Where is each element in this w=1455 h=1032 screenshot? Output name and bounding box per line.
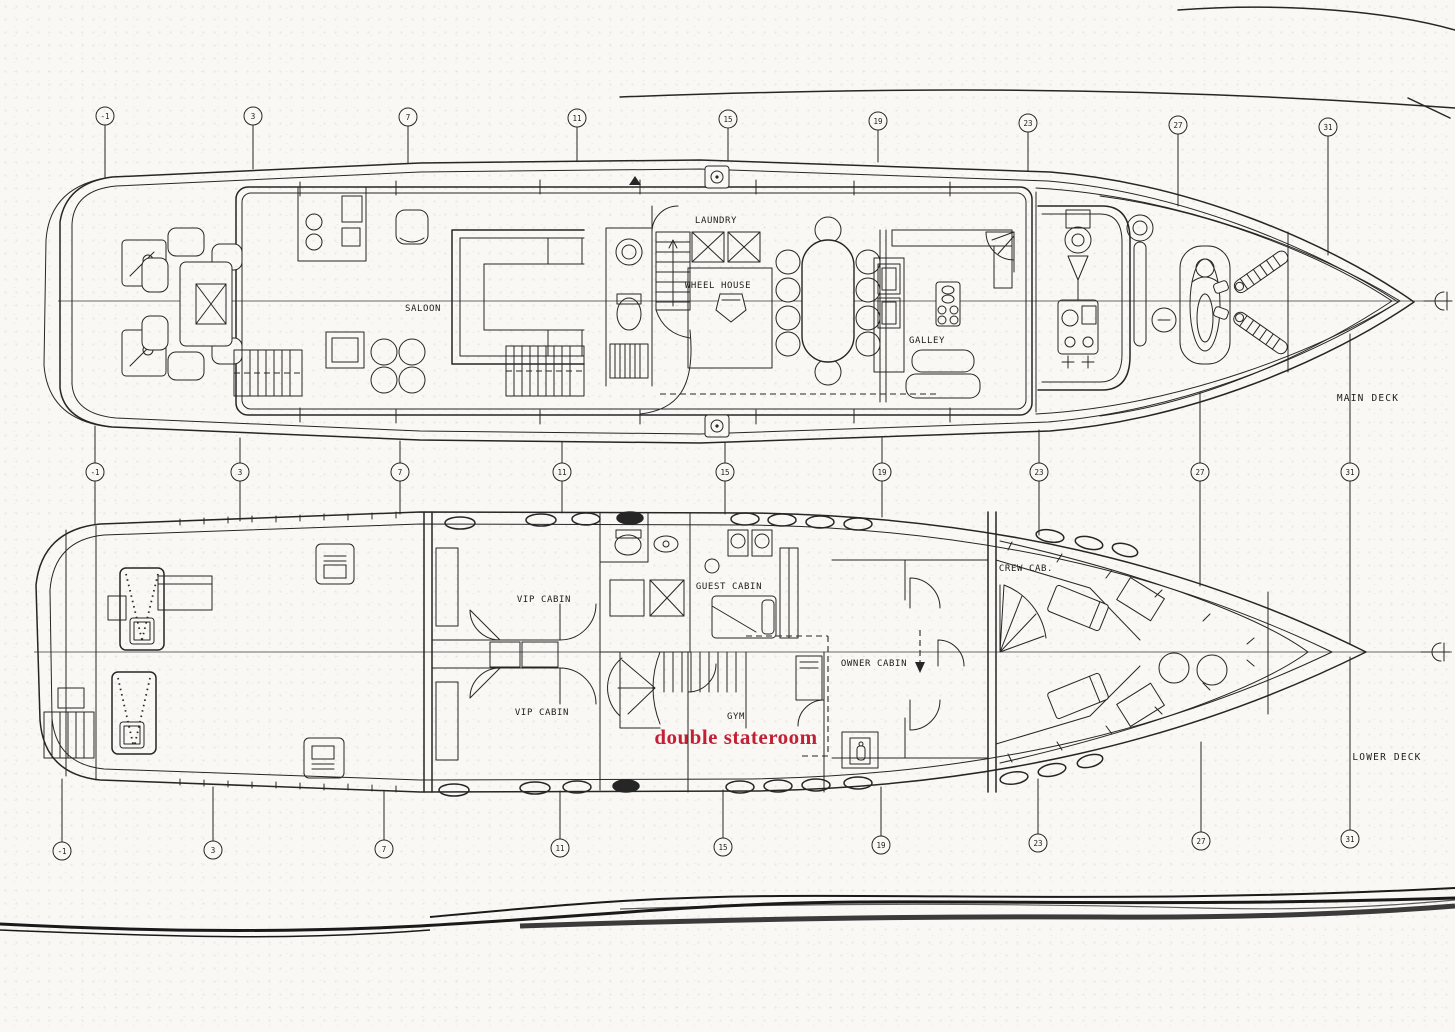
svg-text:7: 7	[382, 845, 387, 854]
svg-text:3: 3	[211, 846, 216, 855]
guest-bed	[712, 596, 776, 638]
guest-cabin-label: GUEST CABIN	[696, 582, 762, 592]
svg-text:11: 11	[572, 114, 581, 123]
main-deck-plan: SALOON LAUNDRY	[44, 160, 1452, 443]
mast-pole	[1127, 215, 1153, 346]
station-marker: 19	[873, 438, 891, 517]
door-arc	[652, 206, 678, 232]
wardrobe	[436, 548, 458, 626]
svg-text:-1: -1	[100, 112, 109, 121]
day-head	[606, 206, 678, 386]
dining-table	[802, 240, 854, 362]
svg-text:27: 27	[1173, 121, 1182, 130]
station-marker: 3	[231, 438, 249, 521]
double-stateroom-annotation: double stateroom	[654, 725, 817, 749]
station-marker: 15	[716, 442, 734, 514]
vip-cabin-label: VIP CABIN	[515, 708, 569, 718]
lower-deck-plan: VIP CABIN VIP CABIN	[34, 512, 1452, 796]
aft-deck	[122, 228, 302, 396]
door-arc	[938, 640, 964, 666]
svg-text:23: 23	[1023, 119, 1032, 128]
station-marker: 23	[1030, 430, 1048, 535]
station-marker: 7	[375, 791, 393, 858]
cooktop	[936, 282, 960, 326]
saloon-round-tables	[371, 339, 425, 393]
equipment-box	[304, 738, 344, 778]
svg-text:15: 15	[723, 115, 732, 124]
lower-deck-title: LOWER DECK	[1352, 752, 1421, 763]
bow-tank	[1197, 655, 1227, 685]
station-marker: 23	[1029, 779, 1047, 852]
svg-text:-1: -1	[90, 468, 99, 477]
stairs-up	[640, 232, 691, 414]
saloon-label: SALOON	[405, 304, 441, 314]
svg-text:31: 31	[1345, 468, 1354, 477]
laundry-label: LAUNDRY	[695, 216, 737, 226]
station-marker: 23	[1019, 114, 1037, 171]
door-arc	[688, 664, 716, 692]
settee	[912, 350, 974, 372]
svg-text:19: 19	[877, 468, 886, 477]
svg-text:15: 15	[718, 843, 727, 852]
door-arc	[560, 668, 596, 704]
gym-equipment	[796, 656, 822, 700]
owner-cabin-label: OWNER CABIN	[841, 659, 907, 669]
bar-cabinet	[298, 187, 366, 261]
svg-text:19: 19	[873, 117, 882, 126]
main-deck-title: MAIN DECK	[1337, 393, 1399, 404]
svg-text:23: 23	[1033, 839, 1042, 848]
wheel-house-label: WHEEL HOUSE	[685, 281, 751, 291]
svg-text:27: 27	[1196, 837, 1205, 846]
station-marker: 11	[551, 791, 569, 857]
crew-bunk	[1047, 673, 1109, 720]
svg-text:27: 27	[1195, 468, 1204, 477]
bow-tank	[1159, 653, 1189, 683]
scan-edge-band	[0, 888, 1455, 937]
station-marker: 7	[391, 441, 409, 514]
dining-area	[776, 217, 880, 385]
station-marker: 3	[204, 787, 222, 859]
helm-seat	[716, 294, 746, 322]
station-marker: 31	[1319, 118, 1337, 255]
station-marker: 31	[1341, 334, 1359, 644]
door-arc	[470, 668, 500, 698]
station-marker: 27	[1191, 392, 1209, 586]
sink	[654, 536, 678, 552]
centerline-symbol	[1421, 643, 1450, 661]
svg-text:11: 11	[557, 468, 566, 477]
wardrobe	[436, 682, 458, 760]
svg-text:31: 31	[1345, 835, 1354, 844]
svg-text:31: 31	[1323, 123, 1332, 132]
crew-bunk	[1047, 585, 1109, 632]
station-marker: -1	[86, 426, 104, 524]
aft-deck-stairs	[234, 350, 302, 396]
station-marker: 19	[869, 112, 887, 162]
station-markers-bottom: -1 3 7 11 15 19 23 27 31	[53, 657, 1359, 860]
station-marker: -1	[53, 779, 71, 860]
anchor-windlass	[1058, 210, 1098, 368]
davit-crane	[1231, 310, 1289, 356]
station-marker: 15	[719, 110, 737, 160]
galley-label: GALLEY	[909, 336, 945, 346]
svg-text:7: 7	[398, 468, 403, 477]
cabinet	[610, 580, 644, 616]
station-marker: 11	[568, 109, 586, 161]
laundry: LAUNDRY	[692, 216, 760, 262]
saloon-sofa	[452, 230, 584, 364]
water-cooler	[842, 732, 878, 768]
engine	[120, 568, 164, 650]
station-marker: 7	[399, 108, 417, 163]
deck-hatch-aft-bottom	[705, 415, 729, 437]
svg-text:23: 23	[1034, 468, 1043, 477]
davit-crane	[1232, 249, 1290, 295]
station-marker: -1	[96, 107, 114, 177]
door-arc	[798, 700, 824, 726]
jet-ski	[1180, 246, 1230, 364]
engine	[112, 672, 156, 754]
svg-text:3: 3	[238, 468, 243, 477]
vip-cabins: VIP CABIN VIP CABIN	[432, 513, 600, 790]
lower-deck-stairs	[608, 652, 746, 728]
svg-text:19: 19	[876, 841, 885, 850]
tank	[158, 576, 212, 610]
central-bathroom	[600, 513, 690, 652]
svg-text:11: 11	[555, 844, 564, 853]
station-marker: 19	[872, 787, 890, 854]
deck-plans-drawing: SALOON LAUNDRY	[0, 0, 1455, 1032]
stairs-forward	[986, 232, 1014, 272]
blueprint-page: SALOON LAUNDRY	[0, 0, 1455, 1032]
equipment-box	[316, 544, 354, 584]
svg-text:7: 7	[406, 113, 411, 122]
gym: GYM double stateroom	[654, 652, 824, 792]
crew-cabin-label: CREW CAB.	[999, 564, 1053, 574]
door-arc	[910, 700, 940, 730]
station-marker: 11	[553, 442, 571, 513]
saloon: SALOON	[298, 187, 584, 396]
stern-platform	[44, 596, 126, 758]
guest-cabin: GUEST CABIN	[696, 530, 798, 638]
centerline-symbol	[1424, 292, 1452, 310]
svg-text:15: 15	[720, 468, 729, 477]
svg-text:3: 3	[251, 112, 256, 121]
station-marker: 3	[244, 107, 262, 169]
station-marker: 27	[1192, 742, 1210, 850]
vip-cabin-label: VIP CABIN	[517, 595, 571, 605]
door-arc	[470, 610, 500, 640]
sheet-artifact-lines	[620, 7, 1455, 118]
door-arc	[910, 578, 940, 608]
door-arc	[560, 604, 596, 640]
svg-text:-1: -1	[57, 847, 66, 856]
station-marker: 15	[714, 790, 732, 856]
wheel-house: WHEEL HOUSE	[685, 268, 772, 368]
gym-label: GYM	[727, 712, 745, 722]
crew-stairs	[1000, 585, 1046, 652]
